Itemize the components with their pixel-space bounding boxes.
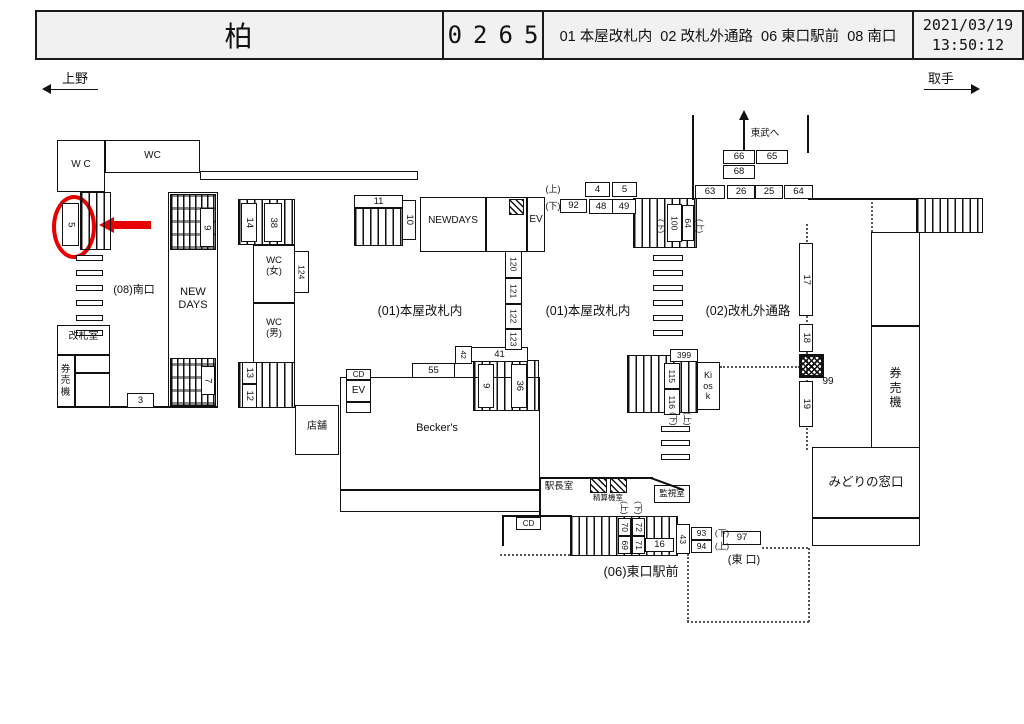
seisanki-hatch-1 [590,478,607,493]
newdays-hatch [509,199,524,215]
label-honya-west: (01)本屋改札内 [372,303,468,319]
dash-55 [76,255,103,261]
north-arrow-icon [739,110,749,120]
plate-7-text: 7 [203,378,213,383]
plate-121-text: 121 [509,284,518,298]
label-ue-stair70: (上) [617,500,630,516]
label-wc-west: W C [57,158,105,172]
label-shita-stair115-text: (下) [668,412,678,425]
dash-66 [653,330,683,336]
plate-17: 17 [799,243,813,316]
plate-49: 49 [612,199,636,214]
east-exit-dotted-h2 [762,547,808,549]
plate-64-row-text: 64 [793,187,804,197]
label-wc-men-text: WC (男) [266,317,282,340]
plate-25: 25 [755,185,783,199]
label-wc-men: WC (男) [255,310,293,346]
plate-71-text: 71 [634,540,643,549]
stair-11 [354,208,403,246]
label-shita-93: (下) [712,528,732,539]
wall-24 [74,372,110,374]
room-midori-south [812,518,920,546]
label-kenbaiki-west: 券 売 機 [56,356,75,406]
dash-62 [653,270,683,276]
wall-26 [253,302,295,304]
plate-3: 3 [127,393,154,408]
east-bldg-dotted [871,202,873,232]
dash-64 [653,300,683,306]
east-exit-dotted-v2 [808,548,810,622]
north-arrow-line [743,119,745,151]
dash-58 [76,300,103,306]
label-shita-stair72-text: (下) [633,501,643,514]
plate-69-text: 69 [620,540,629,549]
label-newdays-center: NEWDAYS [420,213,486,229]
label-newdays-south: NEW DAYS [170,284,216,314]
plate-64-stair: 64 [682,205,694,241]
plate-38: 38 [264,203,282,242]
stair-115-116 [627,355,698,413]
plate-26-text: 26 [736,187,747,197]
label-ue-stair100-text: (上) [695,219,705,233]
wall-31 [340,489,540,491]
plate-5-upper-text: 5 [622,185,627,195]
east-exit-dotted-h3 [500,554,570,556]
plate-43: 43 [676,524,690,554]
label-east-exit: (06)東口駅前 [596,563,686,580]
plate-3-text: 3 [138,396,143,406]
plate-93: 93 [691,527,712,540]
plate-123: 123 [505,329,522,350]
plate-19: 19 [799,381,813,427]
plate-124: 124 [294,251,309,293]
stair-south-entrance [80,192,111,250]
label-midori: みどりの窓口 [812,474,920,491]
plate-4: 4 [585,182,610,197]
plate-64-stair-text: 64 [684,218,693,227]
label-kiosk: Ki os k [697,365,719,407]
tobu-corridor-left-wall [692,115,694,200]
plate-71: 71 [632,536,645,554]
plate-cd-south-text: CD [523,520,535,528]
label-shita-stair100-text: (下) [656,219,666,233]
plate-93-text: 93 [697,529,706,538]
label-ue-45-text: (上) [546,184,561,195]
plate-cd-south: CD [516,517,541,530]
label-honya-west-text: (01)本屋改札内 [378,304,463,319]
label-higashi-guchi-text: (東 口) [728,554,760,567]
label-shita-92-text: (下) [546,201,561,212]
label-kiosk-text: Ki os k [703,370,713,402]
label-kanshi-text: 監視室 [659,488,685,498]
dash-68 [661,440,690,446]
label-east-exit-text: (06)東口駅前 [603,564,678,580]
plate-122-text: 122 [509,309,518,323]
plate-55: 55 [412,363,455,378]
label-ekicho: 駅長室 [541,481,577,493]
seisanki-hatch-2 [610,478,627,493]
dash-56 [76,270,103,276]
plate-5-circled: 5 [62,203,79,246]
plate-5-upper: 5 [612,182,637,197]
plate-9-escalator: 9 [200,208,214,247]
label-ue-94: (上) [712,541,732,552]
plate-18: 18 [799,324,813,352]
plate-43-text: 43 [679,534,688,543]
plate-16: 16 [645,538,674,552]
plate-94: 94 [691,540,712,553]
label-kaisatsugai-text: (02)改札外通路 [706,304,791,319]
label-shita-stair115: (下) [666,410,679,428]
label-ue-94-text: (上) [715,541,729,551]
plate-399: 399 [670,349,698,362]
plate-70: 70 [618,518,631,536]
plate-92-text: 92 [568,201,579,211]
label-higashi-guchi: (東 口) [718,554,770,567]
label-tobu-text: 東武へ [751,128,780,139]
label-ue-stair115: (上) [681,410,693,428]
label-ekicho-text: 駅長室 [545,481,574,492]
south-exit-wall-v [502,515,504,546]
plate-11: 11 [354,195,403,208]
plate-42: 42 [455,346,472,364]
plate-17-text: 17 [801,274,811,285]
plate-72-text: 72 [634,522,643,531]
label-ue-stair115-text: (上) [682,412,692,425]
plate-41-text: 41 [494,350,505,360]
label-shita-92: (下) [544,200,562,212]
plate-116-text: 116 [668,395,677,409]
tobu-corridor-right-wall [807,115,809,153]
plate-70-text: 70 [620,522,629,531]
plate-ev-center-text: EV [352,386,365,396]
plate-124-text: 124 [297,265,306,279]
plate-16-text: 16 [654,540,665,550]
plate-14-text: 14 [244,217,254,228]
label-99-text: 99 [822,376,833,388]
plate-115: 115 [664,363,680,389]
label-kenbaiki-east-text: 券 売 機 [889,366,901,409]
label-kanshi: 監視室 [654,487,690,500]
plate-65-text: 65 [767,152,778,162]
label-newdays-south-text: NEW DAYS [178,286,207,312]
plate-cd-center: CD [346,369,371,380]
label-south-exit-text: (08)南口 [113,284,155,297]
label-tenpo: 店舗 [297,420,337,434]
label-ue-stair100: (上) [694,213,706,239]
plate-48: 48 [589,199,613,214]
label-ev-center: EV [527,213,545,227]
east-exit-dotted-v1 [687,554,689,622]
stair-northeast [916,198,983,233]
label-honya-east-text: (01)本屋改札内 [546,304,631,319]
plate-13-text: 13 [245,368,255,379]
plate-122: 122 [505,304,522,329]
plate-12-text: 12 [245,391,255,402]
plate-12: 12 [242,384,257,408]
label-kaisatsugai: (02)改札外通路 [700,303,796,319]
label-newdays-center-text: NEWDAYS [428,215,478,227]
label-wc-women: WC (女) [255,250,293,282]
label-99: 99 [817,376,839,388]
highlight-arrow-shaft [114,221,151,229]
plate-14: 14 [241,203,257,242]
label-ev-center-text: EV [529,214,542,226]
label-midori-text: みどりの窓口 [828,475,903,490]
plate-123-text: 123 [509,332,518,346]
plate-66: 66 [723,150,755,164]
plate-13: 13 [242,362,257,384]
marker-99 [799,354,824,378]
plate-42-text: 42 [460,351,468,359]
plate-120: 120 [505,251,522,278]
label-ue-stair70-text: (上) [619,501,629,514]
label-wc-north: WC [105,148,200,164]
plate-115-text: 115 [668,369,677,383]
label-beckers: Becker's [404,421,470,436]
kiosk-dotted-line [720,366,800,368]
plate-63: 63 [695,185,725,199]
station-map-screen: 柏 0265 01 本屋改札内 02 改札外通路 06 東口駅前 08 南口 2… [0,0,1024,724]
east-exit-dotted-h1 [687,621,809,623]
plate-66-text: 66 [734,152,745,162]
label-south-exit: (08)南口 [106,284,162,298]
plate-36: 36 [511,364,527,408]
label-kaisatsushitsu: 改札室 [58,330,109,344]
label-tenpo-text: 店舗 [307,421,327,433]
dash-69 [661,454,690,460]
plate-121: 121 [505,278,522,304]
plate-100-text: 100 [670,216,679,230]
plate-38-text: 38 [268,217,278,228]
plate-97-text: 97 [737,533,748,543]
label-ue-45: (上) [544,183,562,195]
plate-94-text: 94 [697,542,706,551]
plate-9-stair-text: 9 [481,383,491,388]
label-wc-women-text: WC (女) [266,255,282,278]
plate-49-text: 49 [619,202,630,212]
dash-65 [653,315,683,321]
northeast-corridor-top [808,198,918,200]
label-shita-93-text: (下) [715,528,729,538]
plate-36-text: 36 [514,381,524,392]
plate-25-text: 25 [764,187,775,197]
label-kenbaiki-west-text: 券 売 機 [61,364,71,398]
plate-4-text: 4 [595,185,600,195]
plate-399-text: 399 [677,351,691,360]
plate-100: 100 [667,204,682,242]
dash-57 [76,285,103,291]
plate-63-text: 63 [705,187,716,197]
corridor-wall-north [200,171,418,180]
plate-ev-center: EV [346,380,371,402]
label-beckers-text: Becker's [416,422,458,435]
wall-36 [871,325,920,327]
dash-61 [653,255,683,261]
label-shita-stair100: (下) [654,212,668,240]
plate-68: 68 [723,165,755,179]
plate-65: 65 [756,150,788,164]
plate-120-text: 120 [509,257,518,271]
plate-64-row: 64 [784,185,813,199]
dash-63 [653,285,683,291]
plate-72: 72 [632,518,645,536]
label-wc-north-text: WC [144,150,161,162]
plate-26: 26 [727,185,755,199]
floor-plan: CDEVCD3114155459248496665686326256439916… [0,0,1024,724]
label-wc-west-text: W C [71,159,90,171]
plate-7: 7 [201,366,215,395]
plate-9-stair: 9 [478,364,494,408]
label-shita-stair72: (下) [631,500,644,516]
plate-69: 69 [618,536,631,554]
plate-68-text: 68 [734,167,745,177]
plate-19-text: 19 [801,399,811,410]
plate-10-text: 10 [404,215,414,226]
label-tobu: 東武へ [750,128,780,140]
plate-5-circled-text: 5 [66,222,76,227]
room-under-ev [346,402,371,413]
plate-10: 10 [402,200,416,240]
plate-9-escalator-text: 9 [202,225,212,230]
plate-cd-center-text: CD [353,371,365,379]
plate-18-text: 18 [801,333,811,344]
plate-92: 92 [560,199,587,213]
plate-55-text: 55 [428,366,439,376]
dash-59 [76,315,103,321]
label-honya-east: (01)本屋改札内 [540,303,636,319]
plate-48-text: 48 [596,202,607,212]
label-kenbaiki-east: 券 売 機 [871,340,920,436]
label-kaisatsushitsu-text: 改札室 [69,331,99,343]
plate-11-text: 11 [374,197,384,207]
